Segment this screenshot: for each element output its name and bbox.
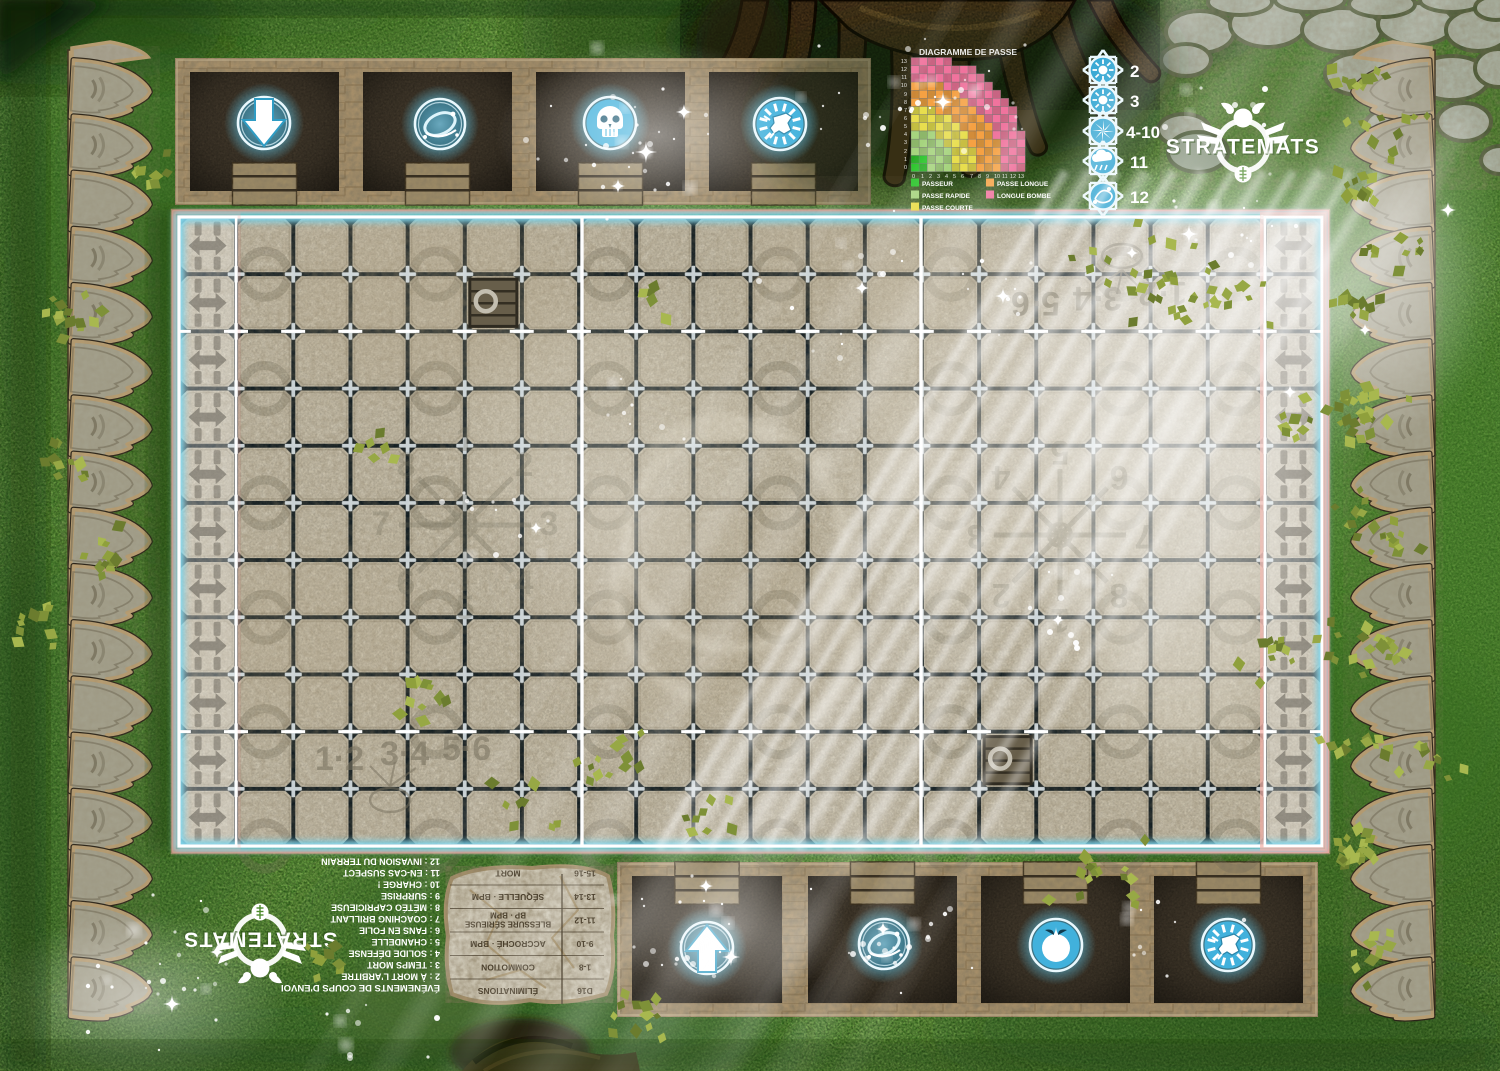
svg-text:5: 5 <box>904 124 907 130</box>
svg-text:8 : MÉTÉO CAPRICIEUSE: 8 : MÉTÉO CAPRICIEUSE <box>331 903 440 913</box>
svg-text:2: 2 <box>904 149 907 155</box>
svg-text:7 : COACHING BRILLANT: 7 : COACHING BRILLANT <box>330 914 440 924</box>
svg-text:4: 4 <box>945 174 948 180</box>
svg-text:6: 6 <box>904 116 907 122</box>
svg-text:13: 13 <box>901 59 907 65</box>
svg-text:8: 8 <box>397 446 416 484</box>
svg-text:6: 6 <box>961 174 964 180</box>
svg-text:12 : INVASION DU TERRAIN: 12 : INVASION DU TERRAIN <box>321 857 440 867</box>
svg-text:4: 4 <box>904 132 907 138</box>
svg-text:1: 1 <box>904 157 907 163</box>
svg-text:7: 7 <box>904 108 907 114</box>
svg-text:5: 5 <box>456 589 475 627</box>
svg-text:1·2: 1·2 <box>315 740 364 778</box>
svg-text:5: 5 <box>953 174 956 180</box>
svg-text:0: 0 <box>904 165 907 171</box>
svg-text:3: 3 <box>904 140 907 146</box>
svg-text:3·4: 3·4 <box>380 735 429 773</box>
svg-text:7: 7 <box>372 505 391 543</box>
svg-text:6: 6 <box>397 564 416 602</box>
svg-text:1: 1 <box>456 421 475 459</box>
